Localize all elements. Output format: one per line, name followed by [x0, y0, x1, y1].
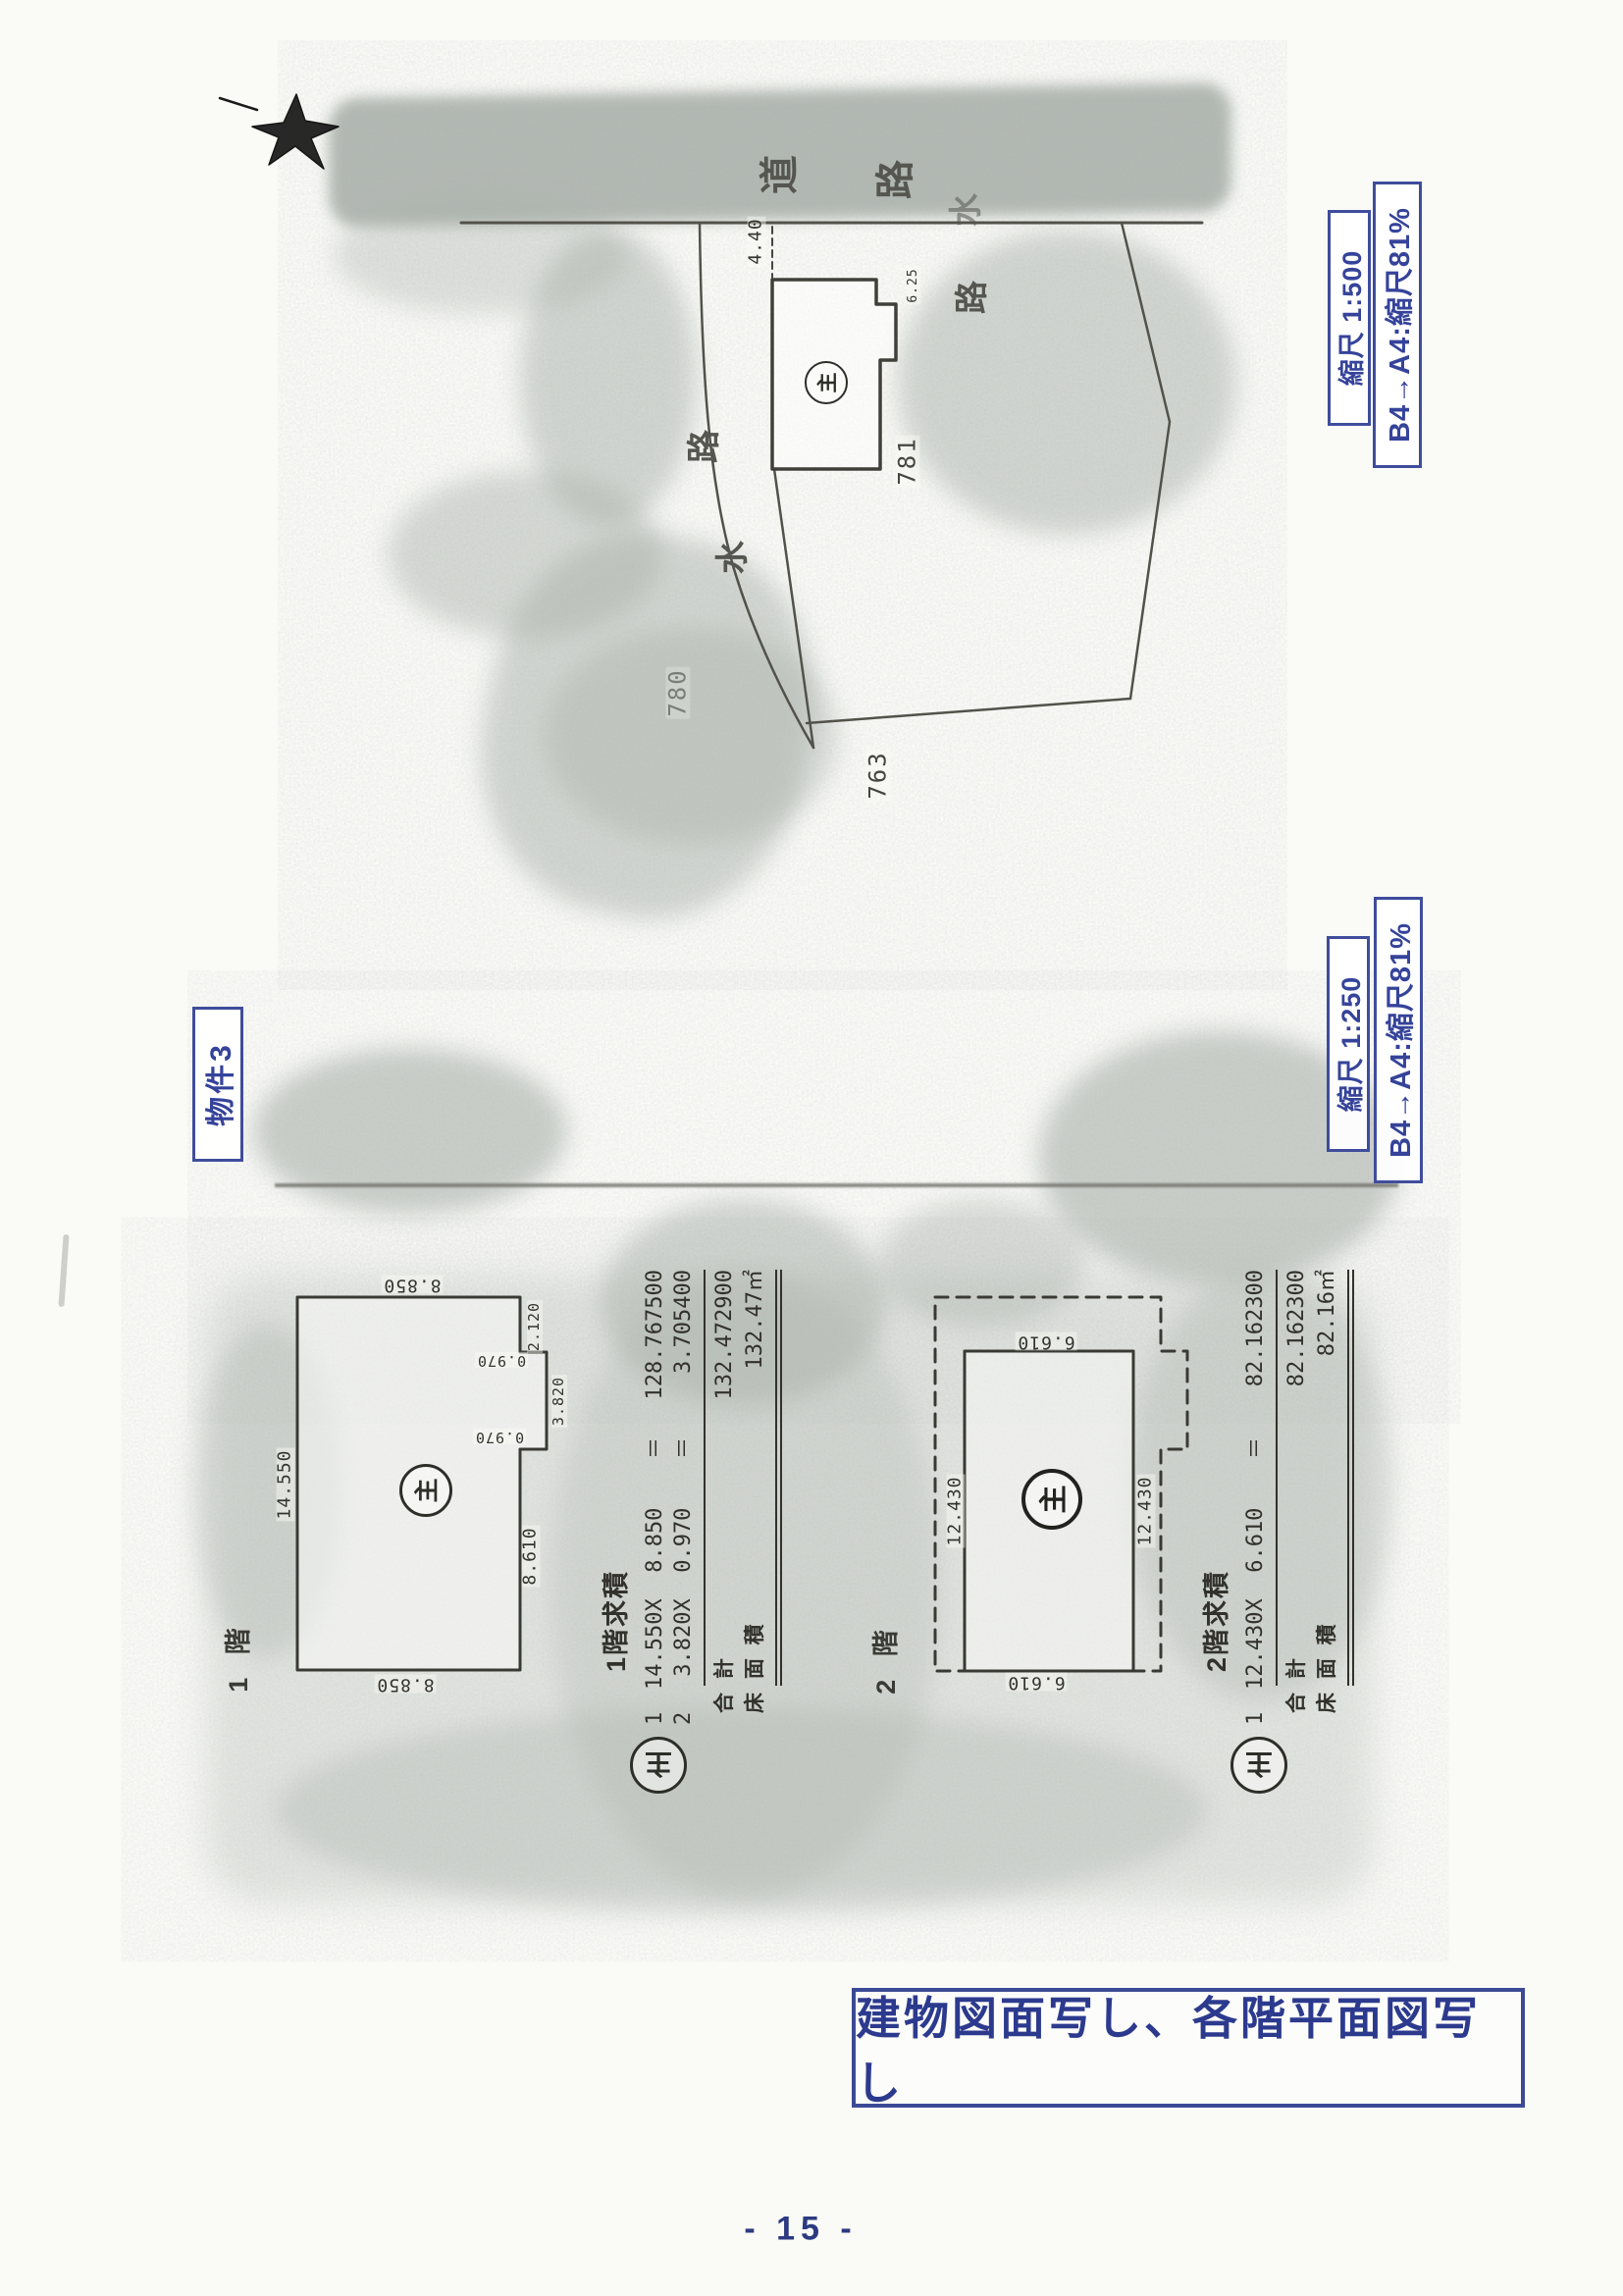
waterway-left-char1: 水 — [716, 539, 752, 576]
floor1-building-mark: 主 — [399, 1464, 452, 1517]
floor1-notch-depth-top: 0.970 — [475, 1352, 528, 1368]
calc-double-rule — [1347, 1270, 1354, 1686]
setback-dimension: 4.40 — [748, 216, 766, 266]
waterway-left-char2: 路 — [688, 428, 723, 465]
calc-row: 2 3.820X 0.970 ＝ 3.705400 — [669, 1270, 698, 1725]
calc-rule — [704, 1270, 706, 1686]
lot-number-780: 780 — [665, 666, 690, 718]
calc-area-row: 床 面 積 132.47㎡ — [740, 1270, 770, 1725]
lot-number-763: 763 — [865, 749, 890, 801]
floor1-notch-length: 3.820 — [551, 1375, 567, 1428]
floor2-area-calc-table: 主 2階求積 1 12.430X 6.610 ＝ 82.162300 合 計 8… — [1179, 1256, 1395, 1805]
site-building-mark: 主 — [805, 361, 848, 404]
calc-total-row: 合 計 132.472900 — [709, 1270, 740, 1725]
floor2-calc-mark: 主 — [1230, 1737, 1287, 1794]
floor1-name: 1 階 — [225, 1618, 252, 1695]
floor2-calc-title: 2階求積 — [1195, 1270, 1233, 1672]
floor1-dim-bottom: 8.850 — [374, 1675, 436, 1694]
reduction-stamp-middle: B4→A4:縮尺81% — [1374, 897, 1423, 1183]
floor1-dim-top: 8.850 — [381, 1276, 443, 1294]
floor2-name: 2 階 — [872, 1620, 900, 1696]
floor2-dim-right: 12.430 — [1137, 1474, 1156, 1547]
floor1-area-calc-table: 主 1階求積 1 14.550X 8.850 ＝ 128.767500 2 3.… — [579, 1256, 795, 1805]
floor1-dim-left: 14.550 — [277, 1447, 295, 1521]
calc-double-rule — [775, 1270, 782, 1686]
scanned-document-page: 道 路 路 水 水 路 781 780 763 4.40 6.25 主 縮尺 1… — [0, 0, 1623, 2296]
scale-stamp-middle: 縮尺 1:250 — [1327, 936, 1370, 1152]
floor2-dim-left: 12.430 — [947, 1474, 966, 1547]
floor1-calc-mark: 主 — [630, 1737, 687, 1794]
lot-number-781: 781 — [895, 435, 919, 487]
waterway-right-char2: 路 — [956, 279, 991, 316]
scale-stamp-top: 縮尺 1:500 — [1328, 210, 1371, 426]
reduction-stamp-top: B4→A4:縮尺81% — [1373, 182, 1422, 468]
property-number-stamp: 物件3 — [192, 1007, 243, 1162]
calc-area-row: 床 面 積 82.16㎡ — [1312, 1270, 1342, 1725]
calc-rule — [1276, 1270, 1278, 1686]
page-number: - 15 - — [744, 2211, 857, 2249]
waterway-right-char1: 水 — [950, 191, 985, 229]
floor1-notch-depth-bottom: 0.970 — [473, 1429, 526, 1444]
calc-total-row: 合 計 82.162300 — [1282, 1270, 1312, 1725]
lower-boundary-line — [807, 699, 1130, 723]
parcel-boundary-line — [774, 469, 813, 748]
floor1-dim-right-lower: 8.610 — [522, 1525, 541, 1587]
calc-row: 1 14.550X 8.850 ＝ 128.767500 — [641, 1270, 669, 1725]
floor1-calc-title: 1階求積 — [595, 1270, 633, 1672]
floor2-dim-top: 6.610 — [1015, 1332, 1076, 1351]
floor2-dim-bottom: 6.610 — [1005, 1673, 1067, 1692]
floor1-notch-offset: 2.120 — [527, 1300, 543, 1353]
north-compass-icon — [220, 94, 339, 169]
road-label-char2: 路 — [875, 158, 916, 201]
document-note-box: 建物図面写し、各階平面図写し — [852, 1988, 1525, 2108]
road-label-char1: 道 — [759, 153, 801, 196]
frontage-dimension: 6.25 — [907, 266, 920, 304]
document-note-text: 建物図面写し、各階平面図写し — [856, 1983, 1521, 2113]
boundary-line-right — [1122, 223, 1170, 699]
floor2-building-mark: 主 — [1021, 1469, 1082, 1530]
calc-row: 1 12.430X 6.610 ＝ 82.162300 — [1241, 1270, 1270, 1725]
